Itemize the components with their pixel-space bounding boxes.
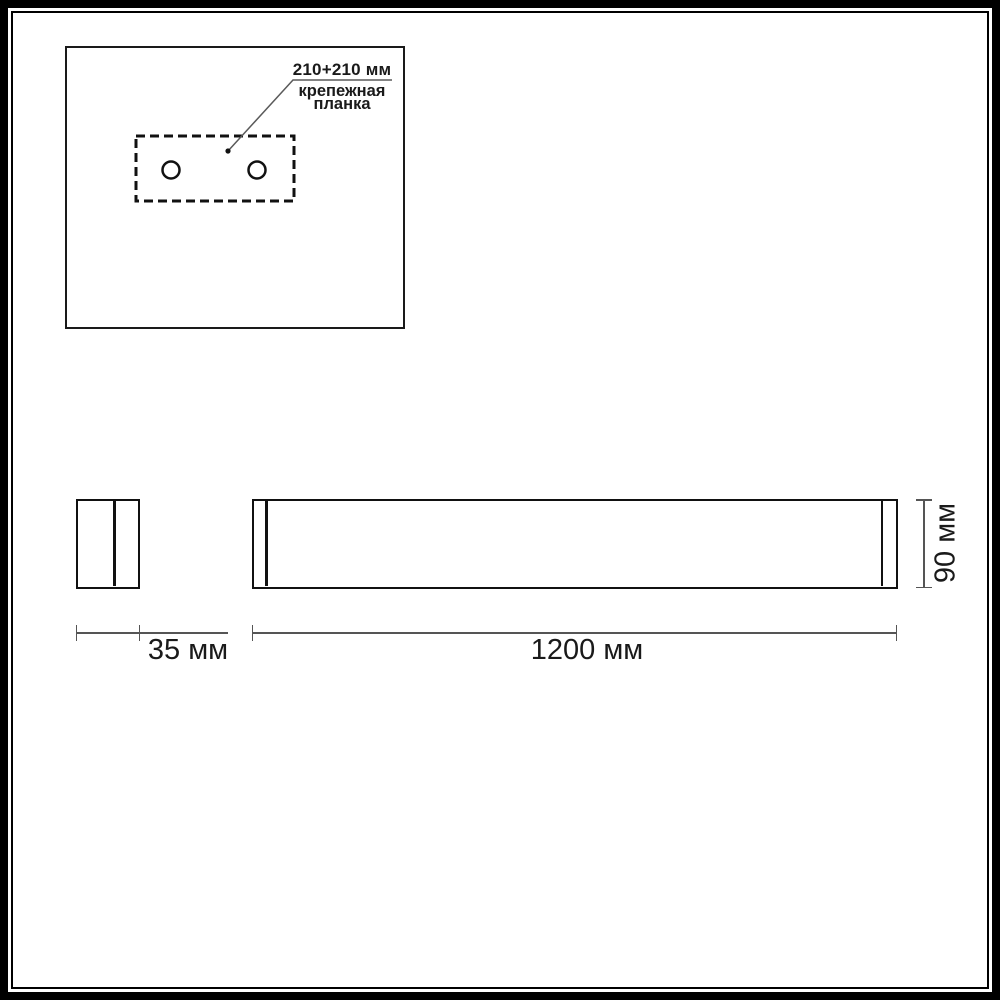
leader-dot xyxy=(225,148,230,153)
screw-hole-left xyxy=(163,162,180,179)
side-view-outline xyxy=(76,499,140,589)
length-dimension-tick-right xyxy=(896,625,898,641)
mounting-plan-box: 210+210 мм крепежная планка xyxy=(65,46,405,329)
front-view-outline xyxy=(252,499,898,589)
mounting-span-label: 210+210 мм xyxy=(272,60,412,80)
front-view-right-endcap-line xyxy=(881,501,884,586)
depth-dimension-label: 35 мм xyxy=(128,634,248,667)
height-dimension-line xyxy=(923,500,925,587)
height-dimension-label: 90 мм xyxy=(930,503,963,583)
length-dimension-label: 1200 мм xyxy=(507,634,667,667)
depth-dimension-tick-left xyxy=(76,625,78,641)
height-dimension-tick-bottom xyxy=(916,587,932,589)
mounting-plate-dashed-outline xyxy=(136,136,294,201)
height-dimension-tick-top xyxy=(916,499,932,501)
mounting-plate-caption-line2: планка xyxy=(272,98,412,111)
screw-hole-right xyxy=(249,162,266,179)
front-view-left-endcap-line xyxy=(265,501,268,586)
technical-drawing-canvas: 210+210 мм крепежная планка 35 мм 1200 м… xyxy=(0,0,1000,1000)
side-view-divider-line xyxy=(113,501,116,586)
mounting-plate-caption: крепежная планка xyxy=(272,85,412,110)
length-dimension-tick-left xyxy=(252,625,254,641)
